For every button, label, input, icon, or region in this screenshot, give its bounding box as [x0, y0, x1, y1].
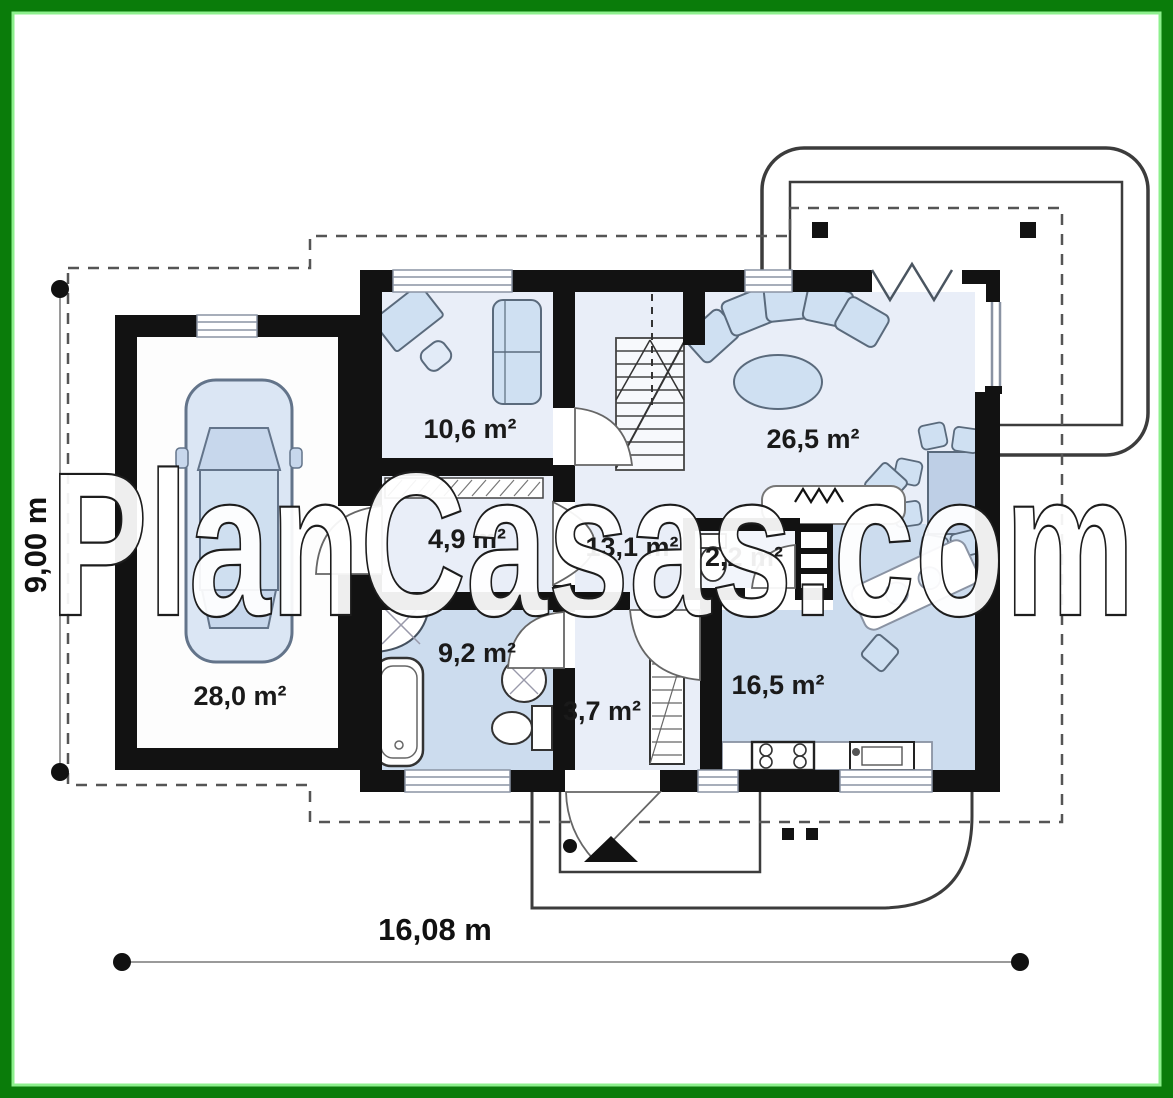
vestibule-area-label: 3,7 m² [563, 696, 641, 726]
kitchen-window [840, 770, 932, 792]
floor-plan-page: 9,00 m 16,08 m [0, 0, 1173, 1098]
terrace-post [1020, 222, 1036, 238]
vestibule-window [698, 770, 738, 792]
office-sofa [493, 300, 541, 404]
porch-post [806, 828, 818, 840]
garage-area-label: 28,0 m² [193, 681, 286, 711]
living-top-window [745, 270, 792, 292]
dimension-width: 16,08 m [113, 912, 1029, 971]
toilet-tank [532, 706, 552, 750]
floor-plan-svg: 9,00 m 16,08 m [0, 0, 1173, 1098]
toilet-bowl [492, 712, 532, 744]
coffee-table [734, 355, 822, 409]
office-window [393, 270, 512, 292]
garage-window [197, 315, 257, 337]
kitchen-area-label: 16,5 m² [731, 670, 824, 700]
kitchen-sink [850, 742, 914, 770]
watermark: PlanCasas.com [50, 430, 1135, 659]
dimension-width-label: 16,08 m [378, 912, 492, 947]
dimension-height-label: 9,00 m [18, 497, 53, 594]
terrace-post [812, 222, 828, 238]
porch-post [782, 828, 794, 840]
bathroom-window [405, 770, 510, 792]
